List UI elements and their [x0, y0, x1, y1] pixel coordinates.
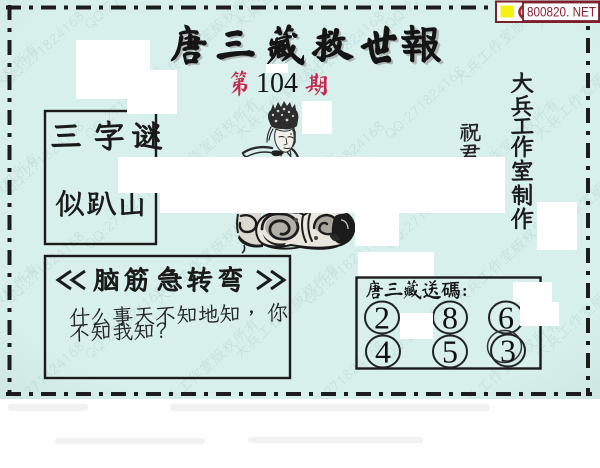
svg-text::: :	[462, 281, 468, 300]
svg-text:800820. NET: 800820. NET	[527, 5, 596, 20]
svg-text:4: 4	[375, 334, 391, 370]
svg-text:5: 5	[442, 334, 458, 370]
svg-text:2: 2	[374, 300, 390, 336]
svg-text:3: 3	[500, 333, 516, 369]
svg-text:8: 8	[442, 300, 458, 336]
